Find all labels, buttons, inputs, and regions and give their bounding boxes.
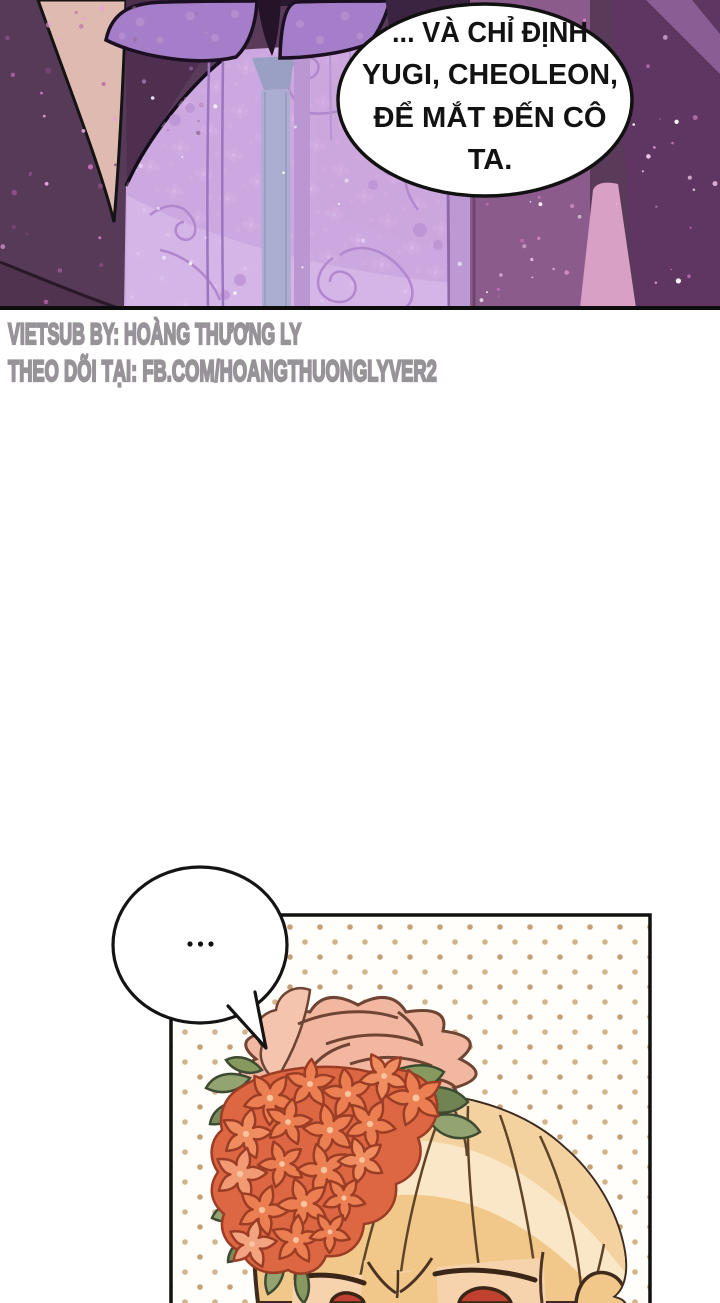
svg-text:YUGI, CHEOLEON,: YUGI, CHEOLEON, [362,59,618,91]
svg-text:ĐỂ MẮT ĐẾN CÔ: ĐỂ MẮT ĐẾN CÔ [374,100,607,134]
svg-text:TA.: TA. [468,144,513,176]
svg-text:THEO DÕI TẠI: FB.COM/HOANGTHUO: THEO DÕI TẠI: FB.COM/HOANGTHUONGLYVER2 [8,352,437,388]
svg-text:... VÀ CHỈ ĐỊNH: ... VÀ CHỈ ĐỊNH [392,15,588,49]
svg-text:VIETSUB BY: HOÀNG THƯƠNG LY: VIETSUB BY: HOÀNG THƯƠNG LY [8,317,302,351]
